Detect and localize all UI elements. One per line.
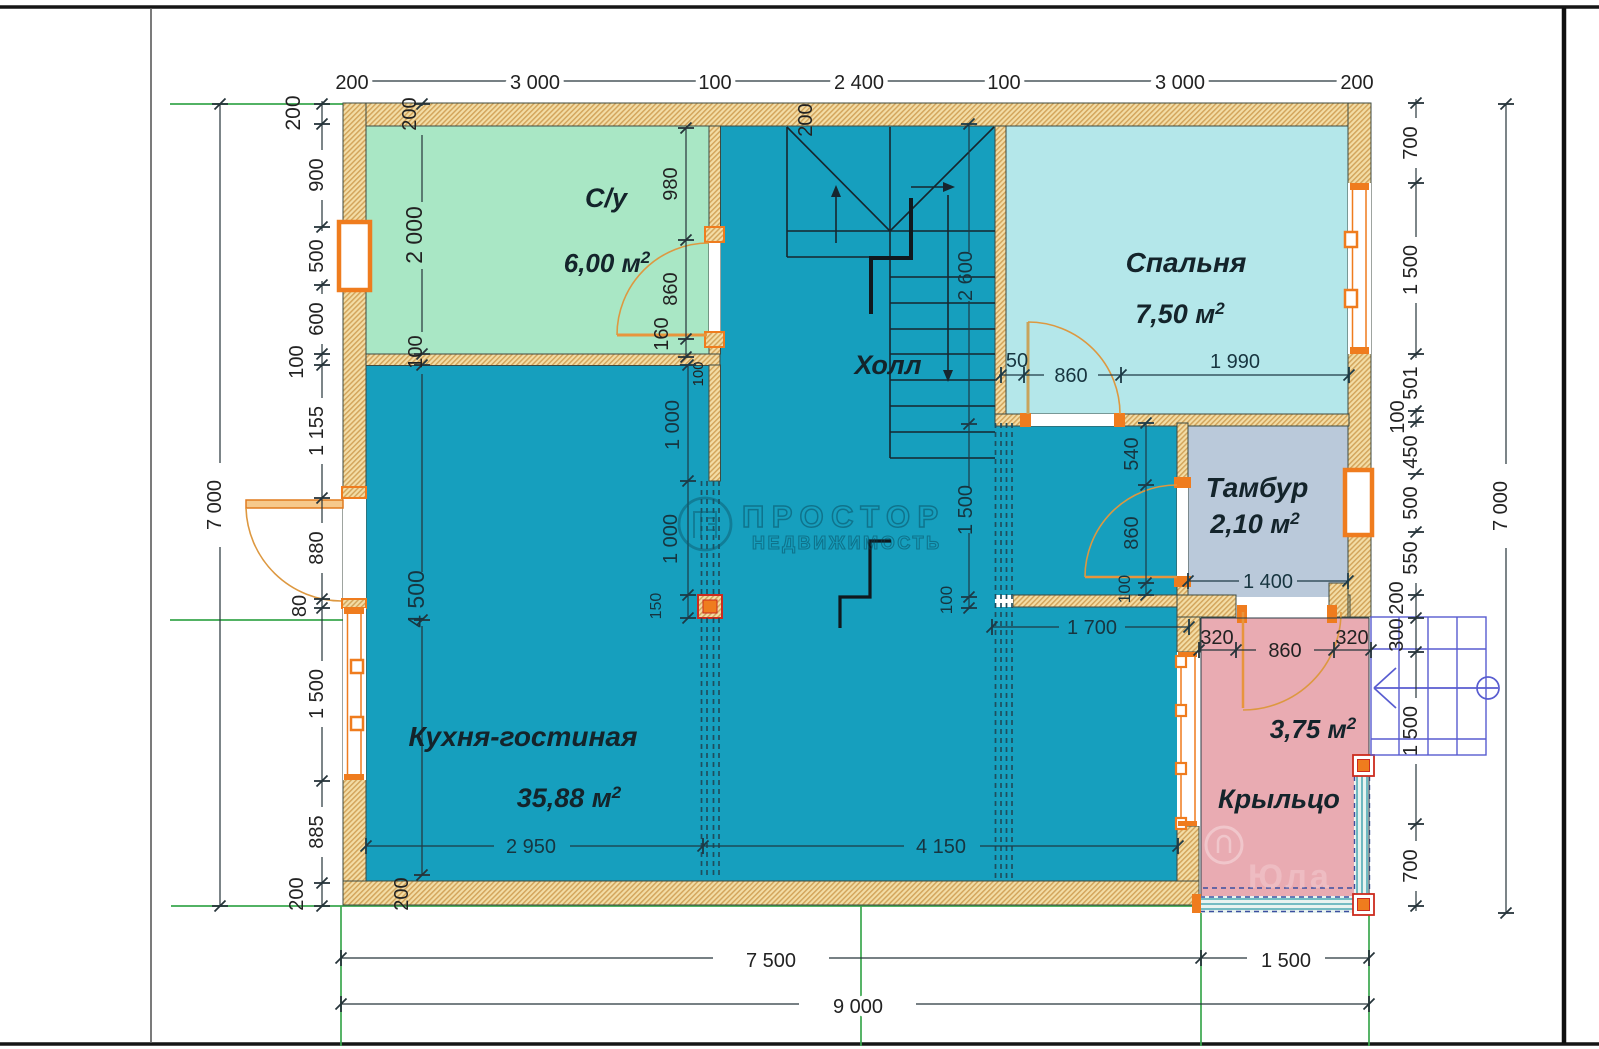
- svg-text:ПРОСТОР: ПРОСТОР: [742, 499, 946, 534]
- svg-text:900: 900: [306, 158, 328, 191]
- svg-text:200: 200: [282, 95, 305, 130]
- svg-text:1 500: 1 500: [1400, 706, 1422, 756]
- svg-text:150: 150: [648, 593, 665, 620]
- svg-text:35,88 м2: 35,88 м2: [517, 783, 622, 813]
- svg-text:1 500: 1 500: [306, 669, 328, 719]
- svg-text:Юла: Юла: [1248, 858, 1332, 896]
- svg-text:200: 200: [795, 103, 817, 136]
- svg-text:100: 100: [937, 586, 956, 614]
- svg-text:200: 200: [286, 877, 308, 910]
- svg-text:С/у: С/у: [585, 183, 629, 213]
- svg-text:НЕДВИЖИМОСТЬ: НЕДВИЖИМОСТЬ: [752, 533, 942, 553]
- svg-text:1 155: 1 155: [306, 406, 328, 456]
- svg-text:Холл: Холл: [852, 350, 921, 380]
- svg-text:3 000: 3 000: [1155, 72, 1205, 94]
- svg-text:9 000: 9 000: [833, 996, 883, 1018]
- svg-text:3 000: 3 000: [510, 72, 560, 94]
- svg-text:100: 100: [405, 335, 427, 368]
- svg-text:860: 860: [660, 272, 682, 305]
- svg-text:7 000: 7 000: [1490, 481, 1512, 531]
- svg-text:100: 100: [987, 72, 1020, 94]
- svg-text:2,10 м2: 2,10 м2: [1209, 509, 1300, 539]
- svg-text:500: 500: [1400, 486, 1422, 519]
- svg-text:540: 540: [1121, 437, 1143, 470]
- svg-text:860: 860: [1054, 365, 1087, 387]
- svg-text:1 500: 1 500: [1261, 950, 1311, 972]
- svg-text:1 400: 1 400: [1243, 571, 1293, 593]
- svg-text:300: 300: [1386, 618, 1408, 651]
- svg-text:4 150: 4 150: [916, 836, 966, 858]
- svg-text:320: 320: [1335, 627, 1368, 649]
- svg-text:3,75 м2: 3,75 м2: [1270, 714, 1357, 744]
- svg-text:7,50 м2: 7,50 м2: [1135, 299, 1225, 329]
- svg-text:160: 160: [651, 317, 673, 350]
- svg-text:1 990: 1 990: [1210, 351, 1260, 373]
- svg-text:1 000: 1 000: [662, 400, 684, 450]
- svg-text:500: 500: [306, 239, 328, 272]
- svg-text:550: 550: [1400, 541, 1422, 574]
- svg-text:1 500: 1 500: [1400, 245, 1422, 295]
- svg-text:100: 100: [698, 72, 731, 94]
- svg-text:50: 50: [1006, 350, 1028, 372]
- svg-text:2 400: 2 400: [834, 72, 884, 94]
- svg-text:7 000: 7 000: [204, 480, 226, 530]
- svg-text:1 700: 1 700: [1067, 617, 1117, 639]
- svg-text:700: 700: [1400, 126, 1422, 159]
- svg-text:1 500: 1 500: [955, 485, 977, 535]
- svg-text:Тамбур: Тамбур: [1206, 472, 1309, 503]
- svg-text:200: 200: [399, 97, 421, 130]
- svg-text:200: 200: [1386, 581, 1408, 614]
- svg-text:2 950: 2 950: [506, 836, 556, 858]
- svg-text:450: 450: [1400, 435, 1422, 468]
- svg-text:7 500: 7 500: [746, 950, 796, 972]
- svg-text:100: 100: [1387, 400, 1409, 433]
- svg-text:4 500: 4 500: [403, 570, 429, 628]
- svg-text:100: 100: [1115, 575, 1134, 603]
- svg-text:80: 80: [289, 595, 311, 617]
- svg-text:100: 100: [286, 345, 308, 378]
- svg-text:860: 860: [1268, 640, 1301, 662]
- svg-text:Кухня-гостиная: Кухня-гостиная: [409, 721, 638, 752]
- svg-text:200: 200: [335, 72, 368, 94]
- svg-text:880: 880: [306, 531, 328, 564]
- svg-text:2 600: 2 600: [955, 251, 977, 301]
- svg-text:Спальня: Спальня: [1126, 247, 1247, 278]
- svg-text:700: 700: [1400, 849, 1422, 882]
- svg-text:200: 200: [391, 877, 413, 910]
- svg-text:860: 860: [1121, 516, 1143, 549]
- svg-text:Крыльцо: Крыльцо: [1218, 784, 1340, 814]
- svg-text:320: 320: [1200, 627, 1233, 649]
- svg-text:600: 600: [306, 302, 328, 335]
- svg-text:980: 980: [660, 167, 682, 200]
- svg-text:2 000: 2 000: [401, 206, 427, 264]
- svg-text:885: 885: [306, 815, 328, 848]
- svg-text:6,00 м2: 6,00 м2: [564, 248, 651, 278]
- svg-text:501: 501: [1400, 366, 1422, 399]
- svg-text:200: 200: [1340, 72, 1373, 94]
